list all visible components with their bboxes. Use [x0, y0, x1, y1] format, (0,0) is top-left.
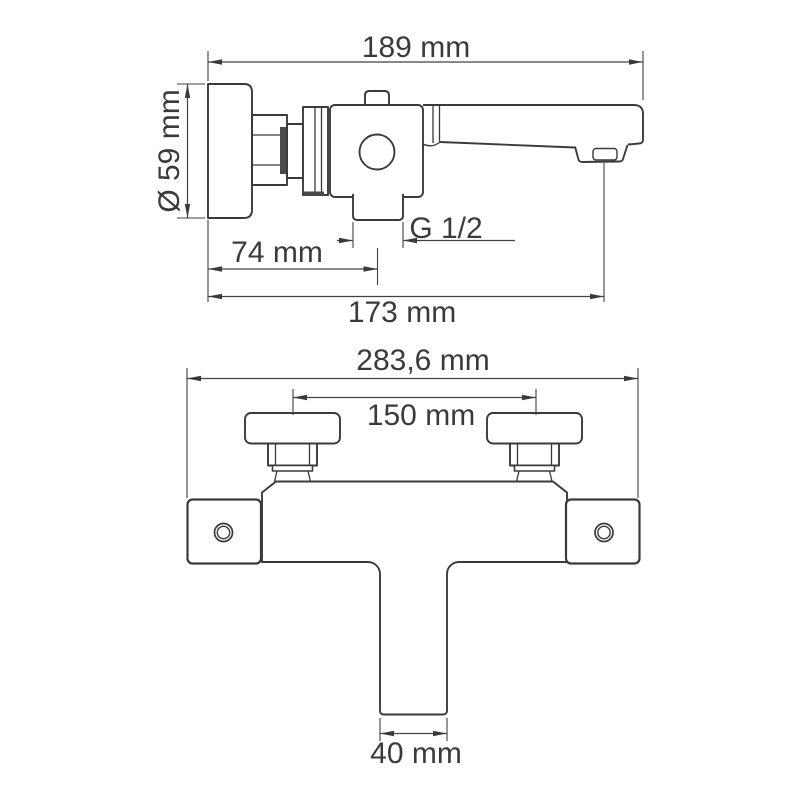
- dimension-wall-to-outlet: 74 mm: [208, 220, 378, 302]
- dimension-flange-diameter: Ø 59 mm: [153, 84, 205, 218]
- spout-arm: [423, 105, 643, 145]
- aerator: [593, 149, 617, 161]
- spout-ring-lines: [423, 105, 440, 146]
- dimension-label-spout-width: 40 mm: [370, 737, 462, 770]
- nut-shading: [280, 127, 286, 174]
- arrowhead-left: [208, 266, 222, 271]
- extension-lines: [353, 222, 403, 248]
- right-collar: [515, 466, 555, 472]
- dimension-label-flange-diameter: Ø 59 mm: [153, 89, 186, 212]
- left-nut-facets: [276, 444, 310, 466]
- faucet-dimension-drawing: 189 mm Ø 59 mm G 1/2 74 mm: [0, 0, 800, 800]
- right-stem: [517, 471, 553, 482]
- body-bar-and-spout: [262, 482, 567, 715]
- dimension-label-outlet-thread: G 1/2: [409, 212, 482, 245]
- cartridge-ring-shading: [304, 192, 324, 196]
- diverter-button: [365, 91, 389, 106]
- spout-underside: [440, 142, 575, 148]
- arrowhead-right: [364, 266, 378, 271]
- arrowhead-left: [187, 376, 201, 381]
- dimension-label-overall-width: 283,6 mm: [356, 344, 489, 377]
- arrowhead-left: [208, 59, 222, 64]
- arrowhead-right: [433, 731, 447, 736]
- dimension-spout-width: 40 mm: [370, 718, 462, 770]
- arrowhead-right: [339, 238, 353, 243]
- arrowhead-right: [629, 59, 643, 64]
- left-stem: [275, 471, 311, 482]
- right-end-cap: [566, 500, 640, 564]
- arrowhead-right: [522, 395, 536, 400]
- side-view: 189 mm Ø 59 mm G 1/2 74 mm: [153, 31, 643, 329]
- left-flange: [245, 413, 340, 444]
- arrowhead-left: [293, 395, 307, 400]
- left-end-cap: [188, 500, 262, 564]
- left-collar: [273, 466, 313, 472]
- dimension-label-mounting-centers: 150 mm: [367, 399, 475, 432]
- dimension-label-overall-length: 189 mm: [362, 31, 470, 64]
- connector-stem: [287, 124, 303, 178]
- wall-flange-outline: [208, 84, 252, 218]
- arrowhead-right: [590, 294, 604, 299]
- arrowhead-left: [208, 294, 222, 299]
- dimension-label-wall-to-outlet: 74 mm: [231, 236, 323, 269]
- shower-outlet: [353, 194, 403, 220]
- technical-drawing-page: 189 mm Ø 59 mm G 1/2 74 mm: [0, 0, 800, 800]
- valve-body: [330, 105, 423, 197]
- right-flange: [487, 413, 582, 444]
- dimension-label-wall-to-spout: 173 mm: [348, 296, 456, 329]
- arrowhead-left: [380, 731, 394, 736]
- dimension-overall-length: 189 mm: [208, 31, 643, 100]
- arrowhead-right: [624, 376, 638, 381]
- front-view: 283,6 mm 150 mm 40 mm: [187, 344, 640, 770]
- right-nut-facets: [518, 444, 552, 466]
